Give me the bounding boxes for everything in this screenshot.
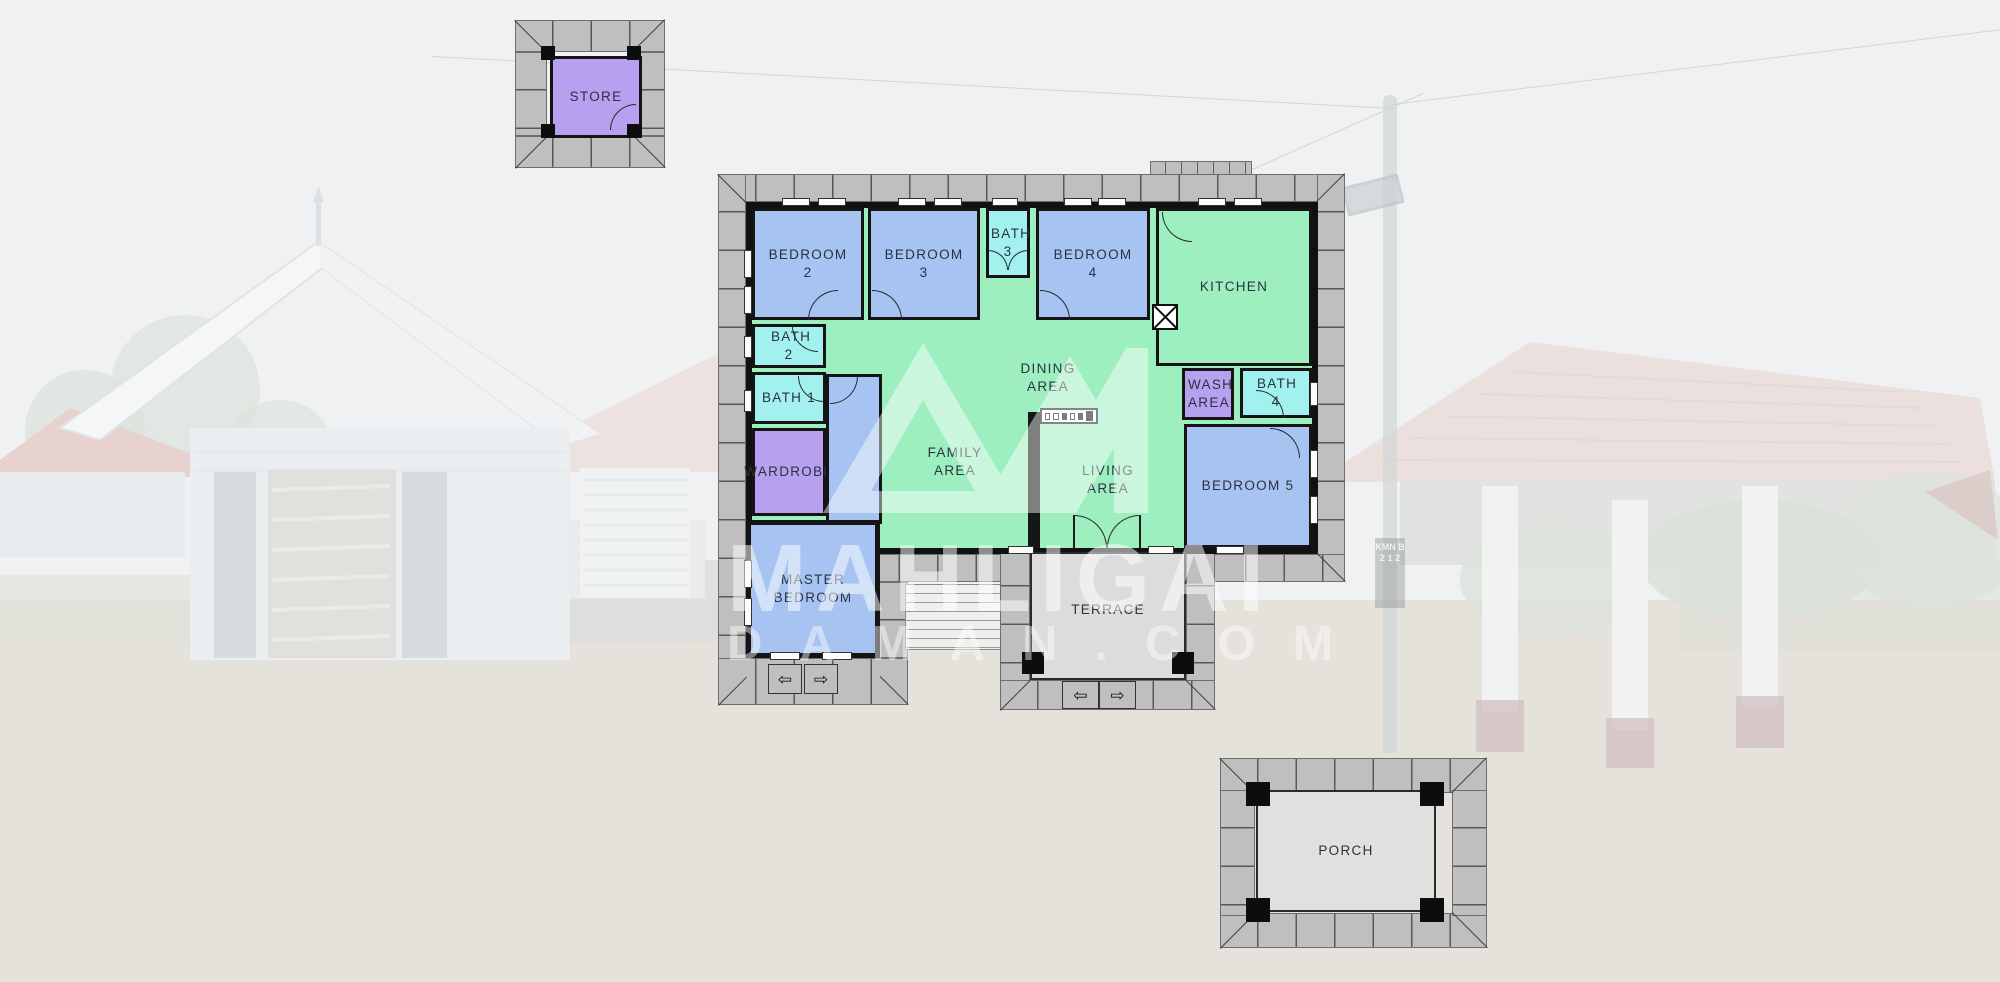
label-dining-area: DINING AREA (998, 356, 1098, 400)
stair-arrow-left-icon: ⇦ (1073, 687, 1087, 704)
room-wardrobe: WARDROBE (752, 428, 826, 516)
pole-sign: KMN B 2 1 2 (1375, 538, 1405, 608)
room-label: WARDROBE (744, 463, 833, 481)
window (1234, 198, 1262, 206)
counter-dot (1078, 413, 1083, 420)
column-post (1420, 898, 1444, 922)
column-post (1246, 898, 1270, 922)
roof-strip (1452, 790, 1487, 916)
column-symbol (1152, 304, 1178, 330)
window (744, 560, 752, 588)
window (1148, 546, 1174, 554)
column-post (1022, 652, 1044, 674)
window (1310, 450, 1318, 478)
window (770, 652, 800, 660)
counter-dot (1070, 413, 1075, 420)
window (1310, 382, 1318, 406)
tv-counter (1040, 408, 1098, 424)
counter-dot (1045, 413, 1050, 420)
roof-vent (1150, 161, 1252, 175)
window (1216, 546, 1244, 554)
roof-strip (879, 582, 908, 658)
column-post (627, 46, 641, 60)
window (744, 598, 752, 626)
window (1064, 198, 1092, 206)
roof-strip (515, 136, 665, 168)
floorplan-page: KMN B 2 1 2 STORE (0, 0, 2000, 982)
window (744, 250, 752, 278)
window (934, 198, 962, 206)
window (992, 198, 1018, 206)
room-label: WASH AREA (1188, 376, 1228, 411)
column-post (1172, 652, 1194, 674)
room-label: STORE (570, 88, 623, 106)
room-wash-area: WASH AREA (1182, 368, 1234, 420)
window (822, 652, 852, 660)
window (1008, 546, 1034, 554)
column-post (1246, 782, 1270, 806)
stair-arrow-cell: ⇦ (768, 664, 802, 694)
stair-arrow-right-icon: ⇨ (1110, 687, 1124, 704)
room-label: BEDROOM 3 (879, 246, 969, 281)
window (782, 198, 810, 206)
room-label: BEDROOM 4 (1047, 246, 1139, 281)
room-label: KITCHEN (1200, 278, 1268, 296)
counter-dot (1053, 413, 1058, 420)
counter-dot (1086, 411, 1093, 421)
window (744, 336, 752, 358)
roof-strip (718, 174, 746, 705)
room-label: BEDROOM 2 (763, 246, 853, 281)
entry-steps (905, 584, 1004, 650)
column-post (541, 46, 555, 60)
window (1098, 198, 1126, 206)
stair-arrow-cell: ⇨ (804, 664, 838, 694)
label-living-area: LIVING AREA (1058, 458, 1158, 502)
roof-strip (515, 20, 665, 52)
roof-strip (1317, 174, 1345, 582)
stair-arrow-left-icon: ⇦ (778, 671, 792, 688)
room-label: BEDROOM 5 (1202, 477, 1295, 495)
stair-arrow-cell: ⇨ (1099, 681, 1136, 709)
window (818, 198, 846, 206)
label-terrace: TERRACE (1058, 595, 1158, 625)
column-post (541, 124, 555, 138)
label-porch: PORCH (1296, 836, 1396, 866)
room-label: MASTER BEDROOM (768, 571, 858, 606)
window (744, 286, 752, 314)
window (898, 198, 926, 206)
divider-wall (1028, 412, 1040, 548)
window (744, 390, 752, 412)
counter-dot (1062, 413, 1067, 420)
room-bedroom-2: BEDROOM 2 (752, 208, 864, 320)
label-family-area: FAMILY AREA (905, 438, 1005, 486)
stair-arrow-right-icon: ⇨ (814, 671, 828, 688)
window (1198, 198, 1226, 206)
window (1310, 496, 1318, 524)
room-master-bedroom: MASTER BEDROOM (746, 520, 880, 658)
stair-arrow-cell: ⇦ (1062, 681, 1099, 709)
column-post (1420, 782, 1444, 806)
